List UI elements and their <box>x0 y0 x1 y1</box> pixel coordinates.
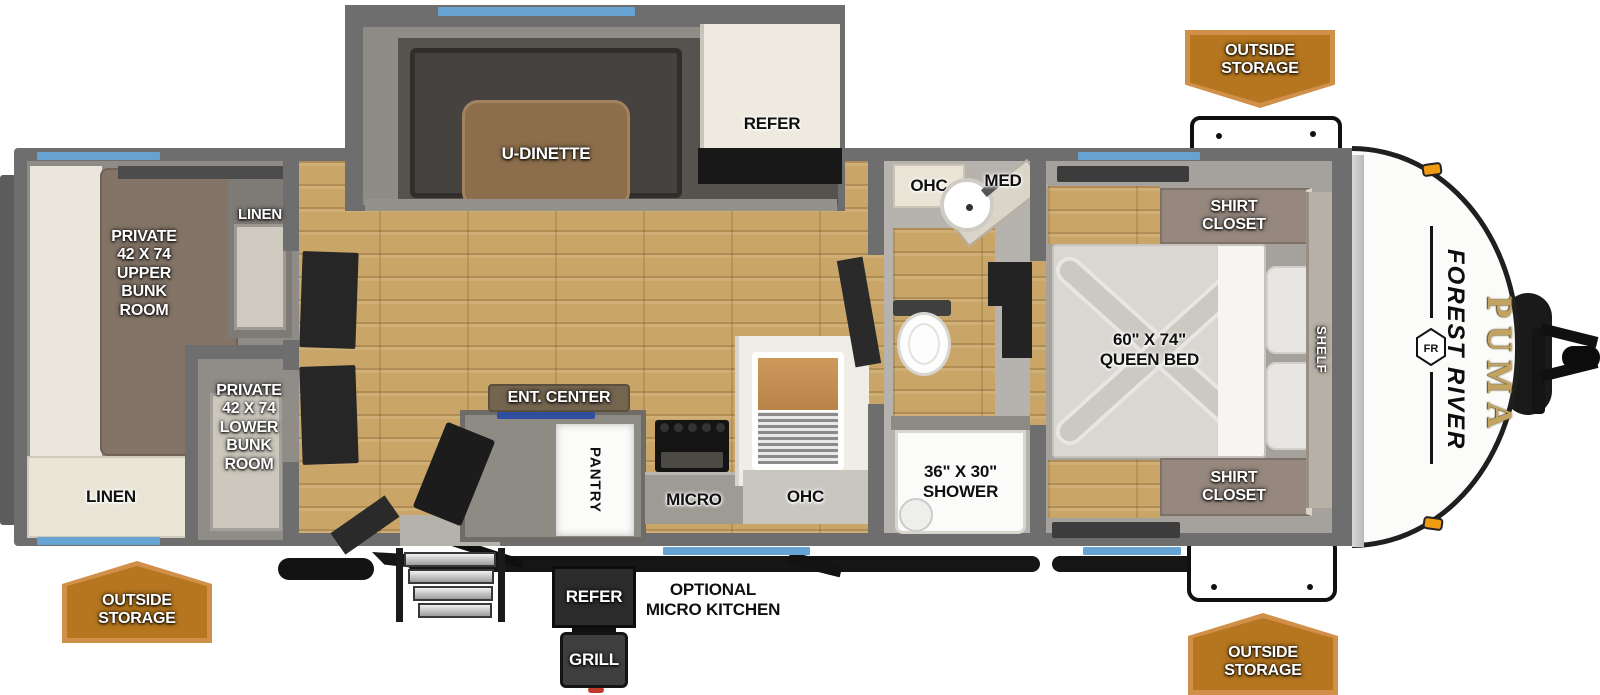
slideout-threshold <box>365 199 837 211</box>
window <box>37 537 160 545</box>
window <box>37 152 160 160</box>
marker-light <box>1422 516 1444 532</box>
ent-center-shelf: ENT. CENTER <box>488 384 630 412</box>
bedroom-floor <box>1048 186 1160 244</box>
brand-monogram: FR <box>1424 343 1439 355</box>
kitchen-lower-counter: OHC <box>743 470 868 524</box>
brand-maker: FOREST RIVER <box>1438 220 1472 480</box>
grab-handle <box>278 558 374 580</box>
outside-storage-banner: OUTSIDE STORAGE <box>62 561 212 643</box>
outside-storage-banner: OUTSIDE STORAGE <box>1188 613 1338 695</box>
bedroom-rail <box>1052 522 1180 538</box>
kitchen-ohc-label: OHC <box>787 487 824 507</box>
bedroom-wall <box>1030 161 1046 261</box>
linen-lower-label: LINEN <box>86 487 136 507</box>
cutting-board <box>758 358 838 410</box>
bunk-wall <box>185 345 299 359</box>
outdoor-refer: REFER <box>552 566 636 628</box>
shower-rail <box>891 416 1030 430</box>
outdoor-grill: GRILL <box>560 632 628 688</box>
queen-bed-label: 60" X 74" QUEEN BED <box>1092 330 1207 369</box>
bunk-wall <box>185 345 198 540</box>
drying-rack <box>758 412 838 464</box>
awning-rail <box>1052 556 1198 572</box>
lower-bunk-label: PRIVATE 42 X 74 LOWER BUNK ROOM <box>200 382 298 474</box>
window <box>1083 547 1181 555</box>
bedroom-wall <box>1030 425 1046 540</box>
slideout-refrigerator: REFER <box>700 24 840 148</box>
outdoor-refer-label: REFER <box>566 587 623 607</box>
linen-upper-label: LINEN <box>224 206 296 223</box>
cabinet-door <box>234 224 286 330</box>
bath-shelf <box>1002 306 1032 358</box>
window <box>1078 152 1200 160</box>
shirt-closet-front: SHIRT CLOSET <box>1160 458 1312 516</box>
shirt-closet-label: SHIRT CLOSET <box>1202 198 1266 235</box>
door-panel <box>299 365 358 465</box>
door-panel <box>299 251 358 349</box>
shirt-closet-rear: SHIRT CLOSET <box>1160 188 1312 244</box>
bedroom-rail <box>1057 166 1189 182</box>
shirt-closet-label: SHIRT CLOSET <box>1202 469 1266 506</box>
bath-wall <box>868 404 884 540</box>
cap-seam <box>1352 155 1364 547</box>
dinette-slideout: U-DINETTE REFER <box>345 5 845 211</box>
pantry-label: PANTRY <box>586 447 603 513</box>
oven-window <box>661 452 723 468</box>
toilet <box>897 312 951 376</box>
ent-center-label: ENT. CENTER <box>508 389 611 407</box>
living-wall <box>283 340 299 370</box>
shower-seat <box>899 498 933 532</box>
dinette-table: U-DINETTE <box>462 100 630 208</box>
brand-rule <box>1430 372 1433 464</box>
dinette-label: U-DINETTE <box>502 144 591 164</box>
window <box>438 7 635 16</box>
shower-label: 36" X 30" SHOWER <box>923 462 998 501</box>
upper-bunk-label: PRIVATE 42 X 74 UPPER BUNK ROOM <box>92 228 196 320</box>
bedroom-floor <box>1048 460 1160 518</box>
soundbar-accent <box>497 412 595 419</box>
bath-wall <box>868 161 884 255</box>
outside-storage-label: OUTSIDE STORAGE <box>1224 644 1301 681</box>
kitchen-sink <box>752 352 844 470</box>
bed-sheet <box>1218 246 1264 458</box>
brand-model: PUMA <box>1478 278 1522 454</box>
outside-storage-banner: OUTSIDE STORAGE <box>1185 30 1335 108</box>
linen-cabinet-lower: LINEN <box>27 456 195 538</box>
pantry-panel: PANTRY <box>556 424 634 536</box>
refrigerator-label: REFER <box>744 114 801 134</box>
micro-label: MICRO <box>666 490 722 510</box>
range-stove <box>655 420 729 472</box>
brand-rule <box>1430 226 1433 318</box>
hitch-coupler <box>1562 346 1600 369</box>
marker-light <box>1421 162 1443 178</box>
refer-counter <box>698 148 842 184</box>
med-label: MED <box>974 171 1032 191</box>
bath-shelf <box>988 262 1032 306</box>
rv-floorplan: REFER GRILL OPTIONAL MICRO KITCHEN OUTSI… <box>0 0 1600 695</box>
micro-cabinet: MICRO <box>645 472 743 524</box>
shelf-label: SHELF <box>1313 326 1328 374</box>
front-shelf: SHELF <box>1306 192 1332 508</box>
outside-storage-label: OUTSIDE STORAGE <box>98 592 175 629</box>
outdoor-grill-label: GRILL <box>569 650 619 670</box>
sink-drain <box>966 204 973 211</box>
outside-storage-label: OUTSIDE STORAGE <box>1221 42 1298 79</box>
micro-kitchen-caption: OPTIONAL MICRO KITCHEN <box>628 580 798 619</box>
bunk-rail <box>118 166 290 179</box>
window <box>663 547 810 555</box>
